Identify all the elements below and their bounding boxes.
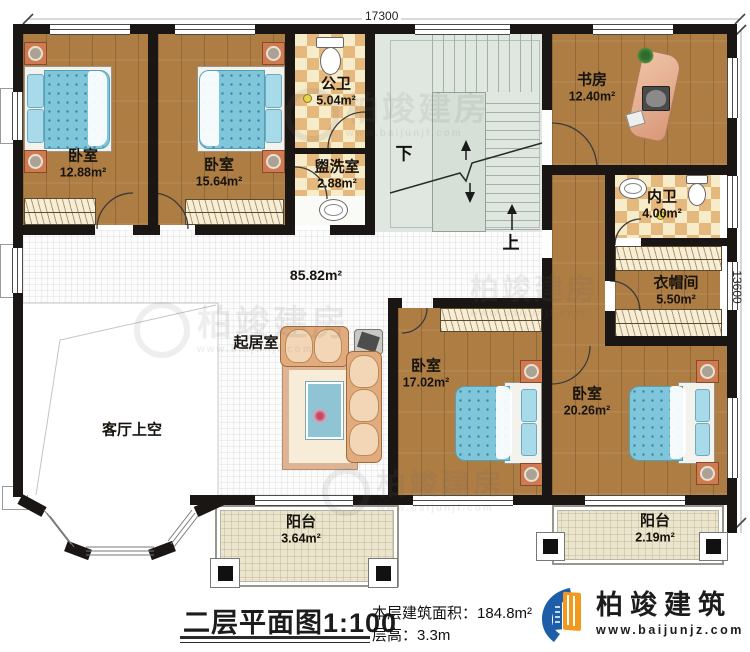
sofa-cushion [349,355,379,388]
bed-sheet-symbol [88,71,107,146]
hallway-floor [552,175,605,346]
pillow-symbol [521,423,537,456]
room-area: 5.04m² [316,93,356,107]
room-area: 2.88m² [314,176,359,190]
wall [190,495,255,505]
wall [388,298,398,505]
room-label-study: 书房 12.40m² [569,73,616,104]
stair-up-label: 上 [503,229,520,254]
company-url: www.baijunjz.com [596,623,744,637]
pillow-symbol [27,109,44,143]
room-name: 内卫 [642,190,682,207]
window [727,176,738,228]
window [415,24,510,35]
room-label-void: 客厅上空 [102,423,162,440]
sofa-cushion [349,423,379,456]
bay-window-wall [20,499,222,555]
window [175,24,255,35]
room-area: 12.88m² [60,165,107,179]
bed-sheet-symbol [200,71,219,146]
title-underline [180,636,370,639]
plant-symbol [637,47,654,64]
wall [195,225,295,235]
stair-landing [432,92,486,232]
room-label-private-bath: 内卫 4.00m² [642,190,682,221]
living-area-value: 85.82m² [290,268,342,284]
floor-height-label: 层高： [372,627,417,644]
wardrobe-symbol [615,246,722,271]
room-name: 书房 [569,73,616,90]
company-logo: 柏竣建筑 www.baijunjz.com [538,583,744,645]
room-label-washroom: 盥洗室 2.88m² [314,160,359,191]
window [593,24,673,35]
room-name: 卧室 [196,158,243,175]
wall [388,298,402,308]
room-label-cloakroom: 衣帽间 5.50m² [653,276,698,307]
pillow-symbol [265,109,282,143]
wall [641,238,727,246]
nightstand-symbol [24,42,47,65]
wall [605,165,615,281]
room-area: 2.19m² [635,530,675,544]
floor-height-value: 3.3m [417,627,450,644]
window [12,92,23,140]
room-label-bedroom-3: 卧室 17.02m² [403,359,450,390]
room-name: 卧室 [564,387,611,404]
nightstand-symbol [696,360,719,383]
room-area: 4.00m² [642,206,682,220]
room-name: 卧室 [60,149,107,166]
balcony-pillar [699,532,728,561]
window [585,495,685,506]
window [12,248,23,293]
wardrobe-symbol [615,309,722,337]
wall [330,225,375,235]
nightstand-symbol [24,150,47,173]
wardrobe-symbol [24,198,96,225]
bed-sheet-symbol [670,386,686,459]
dimension-height-label: 13600 [730,256,744,318]
wall [542,165,552,230]
wardrobe-symbol [440,308,542,332]
wall [542,258,552,307]
wall [513,495,585,505]
company-logo-icon [538,583,588,645]
window [413,495,513,506]
room-name: 衣帽间 [653,276,698,293]
sofa-cushion [314,329,342,363]
wall [365,34,375,230]
window [50,24,130,35]
flower-decor [312,408,328,424]
sofa-cushion [349,389,379,422]
living-void-area [23,303,219,495]
stair-treads-lower [486,98,540,230]
pillow-symbol [695,389,710,422]
computer-monitor-symbol [642,86,670,111]
room-area: 17.02m² [403,375,450,389]
plan-title: 二层平面图1:100 [183,601,397,640]
room-name: 客厅上空 [102,423,162,440]
wall [13,225,95,235]
bay-window-glazing [44,510,198,555]
room-name: 阳台 [281,515,321,532]
stair-treads-upper [432,34,540,92]
sink-symbol [319,199,348,221]
pillow-symbol [27,74,44,108]
stair-down-label: 下 [396,140,413,165]
room-name: 阳台 [635,514,675,531]
room-area: 85.82m² [290,268,342,284]
wall [605,238,613,246]
window [727,398,738,478]
nightstand-symbol [262,150,285,173]
toilet-symbol [320,47,341,75]
pillow-symbol [521,389,537,422]
wall [552,165,727,175]
title-underline-thin [180,642,370,643]
room-label-living: 起居室 [233,336,278,353]
window [727,58,738,118]
nightstand-symbol [262,42,285,65]
nightstand-symbol [520,463,543,486]
wall [685,495,737,505]
room-area: 15.64m² [196,174,243,188]
room-name: 起居室 [233,336,278,353]
wall [542,307,552,505]
wardrobe-symbol [185,199,284,225]
floor-area-label: 本层建筑面积： [372,605,477,622]
balcony-pillar [536,532,565,561]
floor-area-value: 184.8m² [477,605,532,622]
wall [353,495,413,505]
keynote-dot [303,94,312,103]
room-label-bedroom-1: 卧室 12.88m² [60,149,107,180]
window [255,495,353,506]
wall [542,24,552,110]
pillow-symbol [265,74,282,108]
room-label-bedroom-2: 卧室 15.64m² [196,158,243,189]
company-name: 柏竣建筑 [596,591,744,619]
nightstand-symbol [696,462,719,485]
room-label-public-bath: 公卫 5.04m² [316,77,356,108]
room-area: 3.64m² [281,531,321,545]
wall [133,225,160,235]
wall [148,34,158,225]
room-label-bedroom-4: 卧室 20.26m² [564,387,611,418]
room-label-balcony-1: 阳台 3.64m² [281,515,321,546]
toilet-symbol [688,183,706,206]
nightstand-symbol [520,360,543,383]
floor-plan-canvas: 卧室 12.88m² 卧室 15.64m² 公卫 5.04m² 盥洗室 2.88… [0,0,750,652]
room-area: 20.26m² [564,403,611,417]
wall [433,298,542,308]
balcony-pillar [210,558,240,588]
sofa-cushion [285,329,313,363]
room-area: 5.50m² [653,292,698,306]
floor-height-stat: 层高：3.3m [372,624,450,645]
room-name: 公卫 [316,77,356,94]
floor-area-stat: 本层建筑面积：184.8m² [372,602,532,623]
room-label-balcony-2: 阳台 2.19m² [635,514,675,545]
wall [605,336,727,346]
bed-sheet-symbol [496,386,512,459]
wall [295,148,365,154]
balcony-pillar [368,558,398,588]
pillow-symbol [695,423,710,456]
dimension-width-label: 17300 [362,9,401,23]
room-name: 盥洗室 [314,160,359,177]
room-name: 卧室 [403,359,450,376]
room-area: 12.40m² [569,89,616,103]
wall [285,34,295,225]
